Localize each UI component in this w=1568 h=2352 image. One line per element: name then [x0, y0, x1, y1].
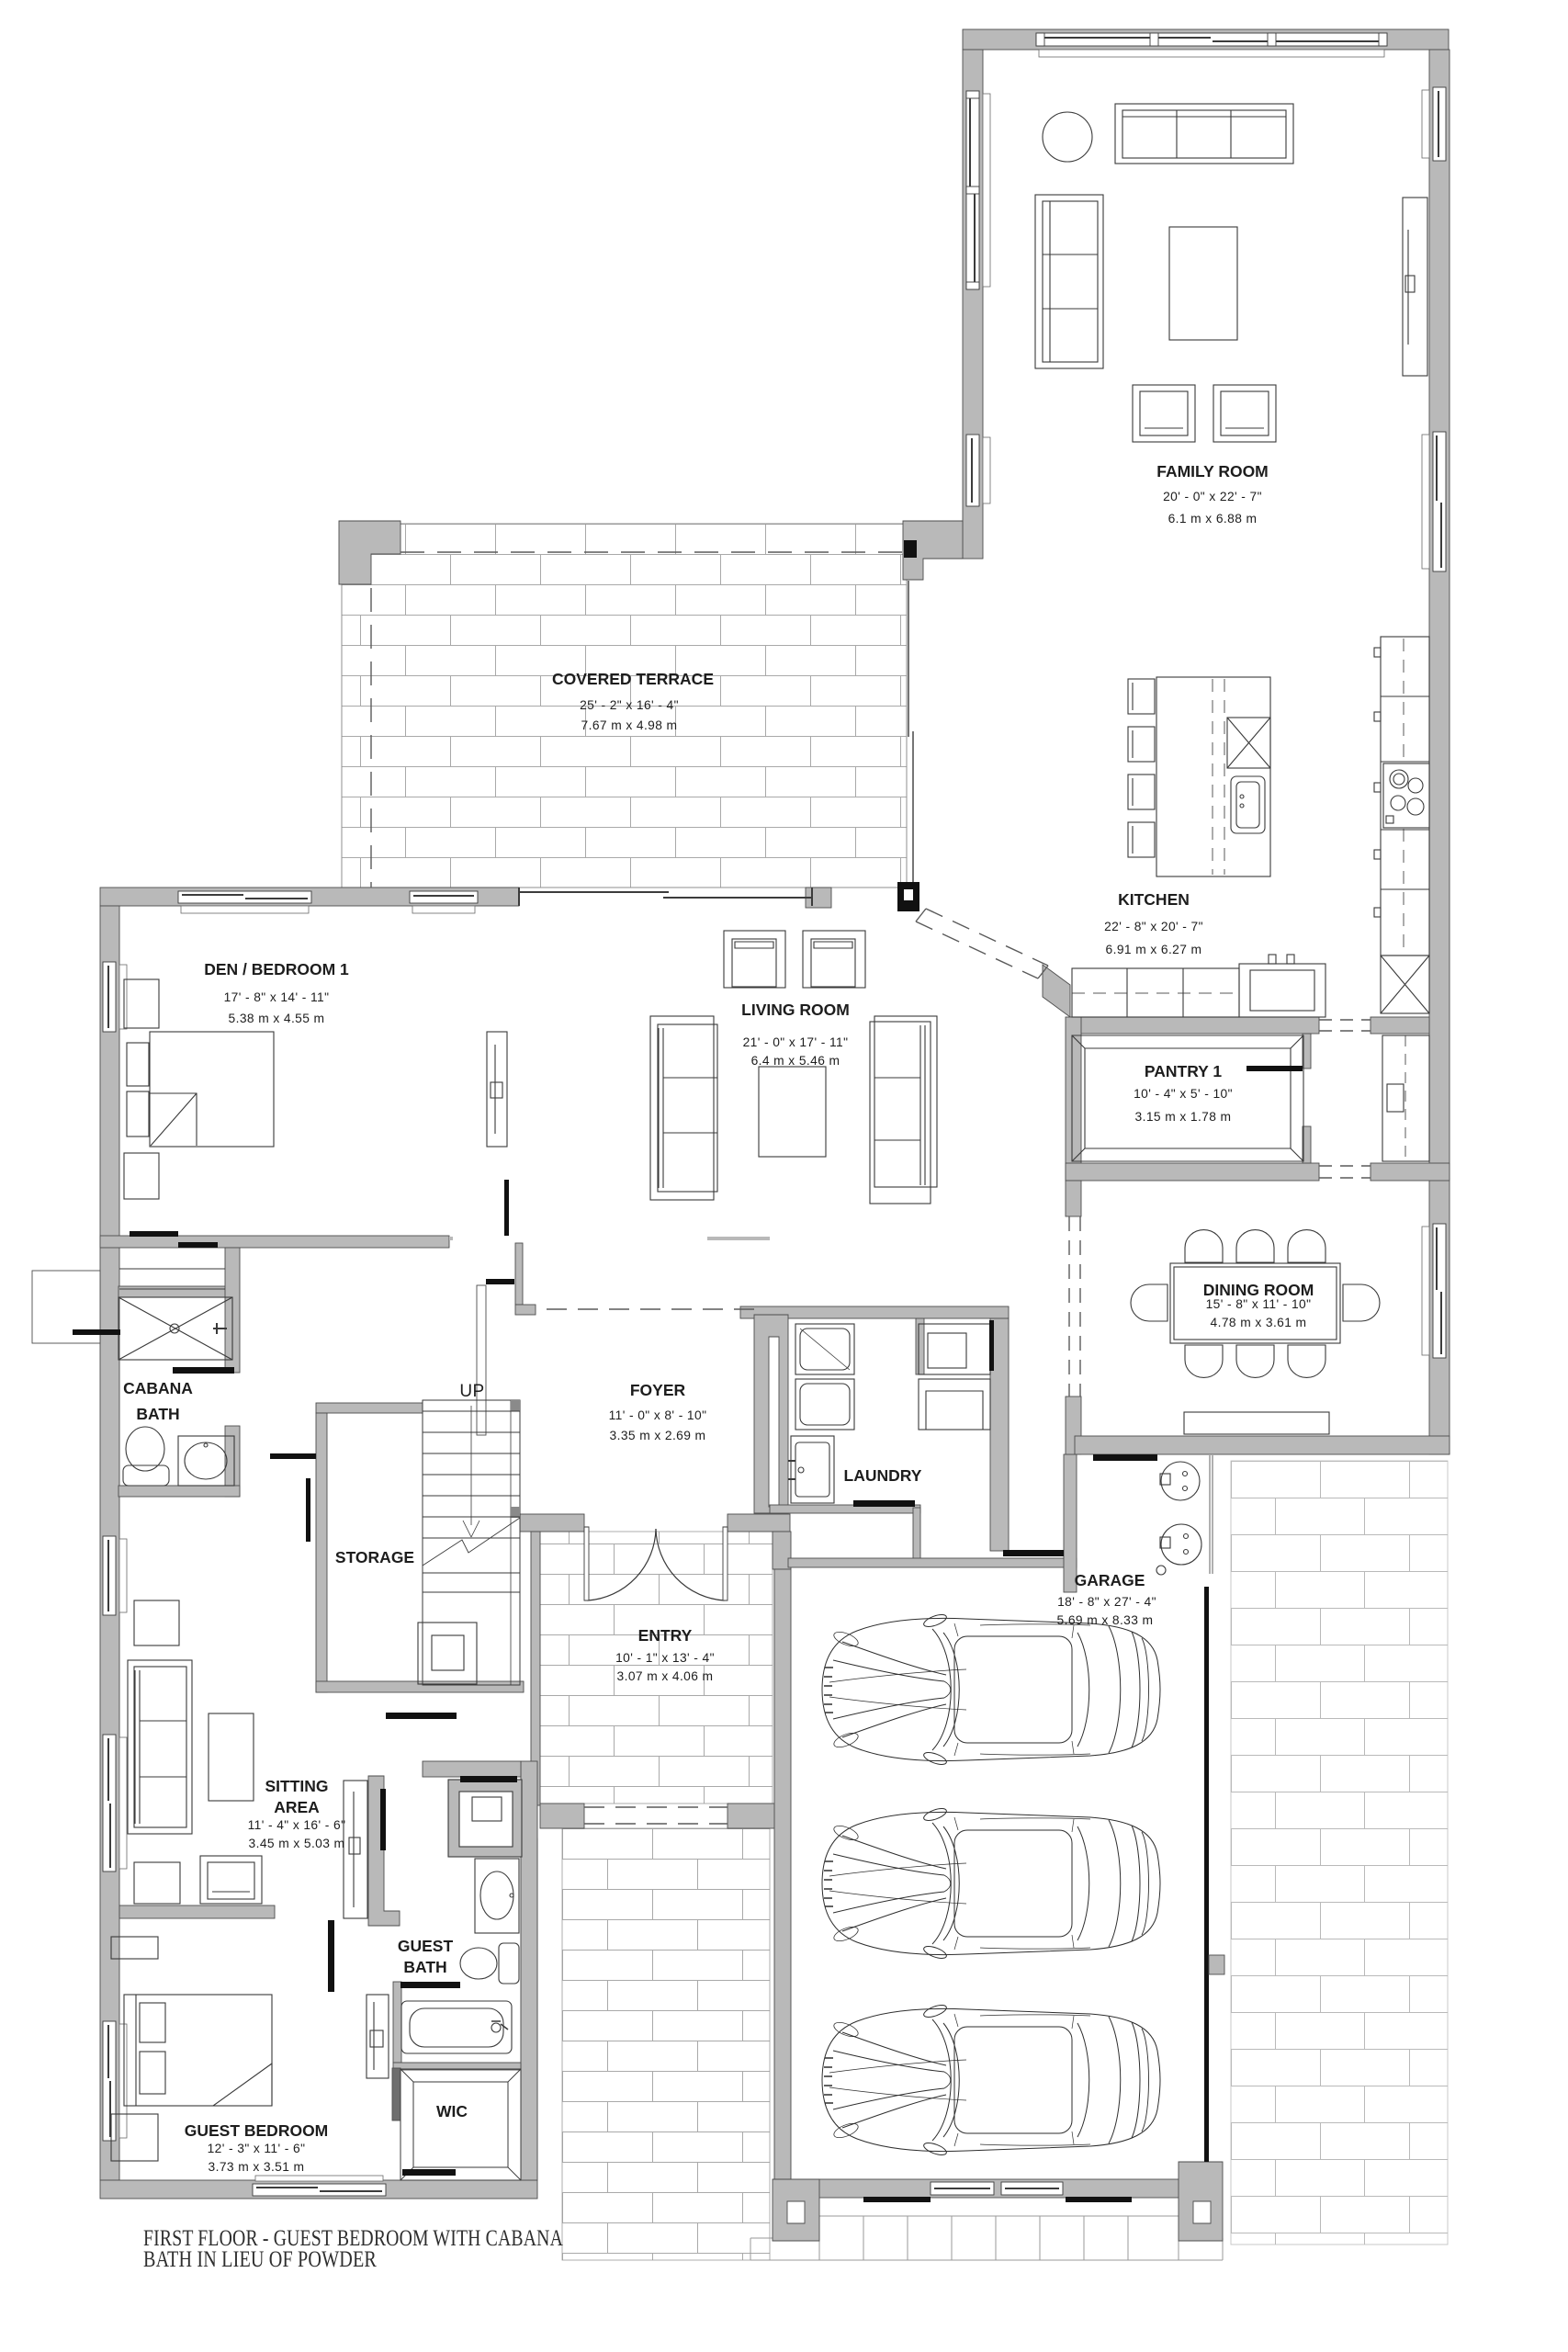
svg-text:22' - 8" x 20' - 7": 22' - 8" x 20' - 7" — [1104, 920, 1203, 933]
svg-text:3.15 m x 1.78 m: 3.15 m x 1.78 m — [1135, 1110, 1232, 1124]
svg-text:GUEST BEDROOM: GUEST BEDROOM — [185, 2121, 329, 2140]
svg-text:KITCHEN: KITCHEN — [1118, 890, 1190, 909]
svg-text:11' - 0" x 8' - 10": 11' - 0" x 8' - 10" — [609, 1408, 707, 1422]
svg-text:25' - 2" x 16' - 4": 25' - 2" x 16' - 4" — [580, 698, 679, 712]
svg-text:5.69 m x 8.33 m: 5.69 m x 8.33 m — [1057, 1613, 1154, 1627]
svg-text:STORAGE: STORAGE — [335, 1548, 414, 1566]
svg-text:6.1 m x 6.88 m: 6.1 m x 6.88 m — [1168, 512, 1258, 526]
svg-text:LIVING ROOM: LIVING ROOM — [741, 1001, 850, 1019]
svg-text:10' - 1" x 13' - 4": 10' - 1" x 13' - 4" — [615, 1651, 715, 1665]
svg-text:3.35 m x 2.69 m: 3.35 m x 2.69 m — [610, 1429, 706, 1442]
svg-text:LAUNDRY: LAUNDRY — [844, 1466, 922, 1485]
svg-text:GARAGE: GARAGE — [1075, 1571, 1145, 1589]
svg-text:BATH IN LIEU OF POWDER: BATH IN LIEU OF POWDER — [143, 2247, 377, 2272]
svg-text:BATH: BATH — [136, 1405, 179, 1423]
svg-text:FAMILY ROOM: FAMILY ROOM — [1156, 462, 1269, 481]
svg-text:4.78 m x 3.61 m: 4.78 m x 3.61 m — [1211, 1316, 1307, 1329]
svg-text:3.07 m x 4.06 m: 3.07 m x 4.06 m — [617, 1669, 714, 1683]
svg-text:AREA: AREA — [274, 1798, 320, 1816]
svg-text:6.4 m x 5.46 m: 6.4 m x 5.46 m — [751, 1054, 840, 1068]
svg-text:15' - 8" x 11' - 10": 15' - 8" x 11' - 10" — [1206, 1297, 1312, 1311]
svg-text:20' - 0" x 22' - 7": 20' - 0" x 22' - 7" — [1163, 490, 1262, 503]
svg-text:CABANA: CABANA — [123, 1379, 193, 1397]
svg-text:3.45 m x 5.03 m: 3.45 m x 5.03 m — [249, 1837, 345, 1850]
svg-text:WIC: WIC — [436, 2102, 468, 2120]
svg-text:DEN / BEDROOM 1: DEN / BEDROOM 1 — [204, 960, 349, 978]
svg-text:FOYER: FOYER — [630, 1381, 686, 1399]
svg-text:GUEST: GUEST — [398, 1937, 454, 1955]
svg-text:COVERED TERRACE: COVERED TERRACE — [552, 670, 714, 688]
svg-text:ENTRY: ENTRY — [638, 1626, 693, 1645]
svg-text:UP: UP — [459, 1382, 484, 1401]
svg-text:7.67 m x 4.98 m: 7.67 m x 4.98 m — [581, 718, 678, 732]
svg-text:6.91 m x 6.27 m: 6.91 m x 6.27 m — [1106, 943, 1202, 956]
svg-text:DINING ROOM: DINING ROOM — [1203, 1281, 1314, 1299]
svg-text:BATH: BATH — [403, 1958, 446, 1976]
svg-text:10' - 4" x 5' - 10": 10' - 4" x 5' - 10" — [1134, 1087, 1233, 1101]
svg-text:SITTING: SITTING — [265, 1777, 328, 1795]
svg-text:17' - 8" x 14' - 11": 17' - 8" x 14' - 11" — [224, 990, 330, 1004]
svg-text:5.38 m x 4.55 m: 5.38 m x 4.55 m — [229, 1012, 325, 1025]
svg-text:12' - 3" x 11' - 6": 12' - 3" x 11' - 6" — [208, 2142, 306, 2155]
svg-text:PANTRY 1: PANTRY 1 — [1145, 1062, 1223, 1080]
svg-text:3.73 m x 3.51 m: 3.73 m x 3.51 m — [209, 2160, 305, 2174]
svg-text:11' - 4" x 16' - 6": 11' - 4" x 16' - 6" — [248, 1818, 346, 1832]
svg-text:18' - 8" x 27' - 4": 18' - 8" x 27' - 4" — [1057, 1595, 1156, 1609]
svg-text:21' - 0" x 17' - 11": 21' - 0" x 17' - 11" — [743, 1035, 849, 1049]
